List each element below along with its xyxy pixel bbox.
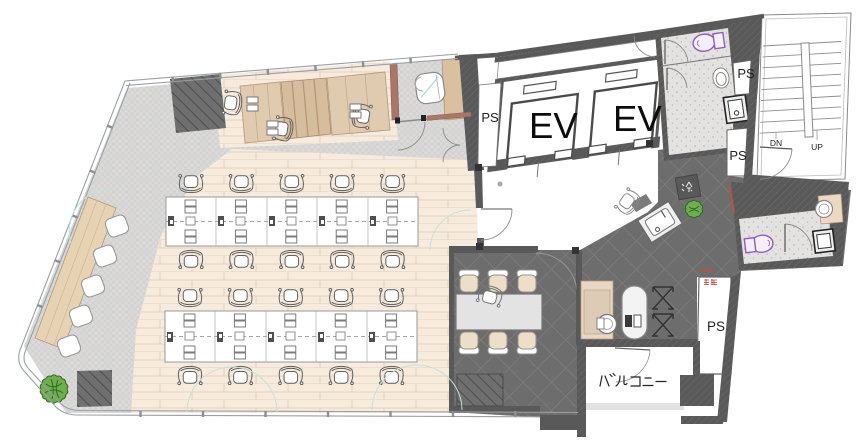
svg-text:UP: UP — [811, 142, 823, 152]
svg-text:PS: PS — [707, 319, 725, 334]
svg-text:PS: PS — [737, 66, 755, 81]
svg-text:EV: EV — [529, 105, 578, 146]
svg-text:PS: PS — [481, 110, 499, 125]
svg-text:EV: EV — [613, 98, 662, 139]
svg-text:PS: PS — [729, 148, 747, 163]
svg-text:DN: DN — [770, 138, 782, 148]
